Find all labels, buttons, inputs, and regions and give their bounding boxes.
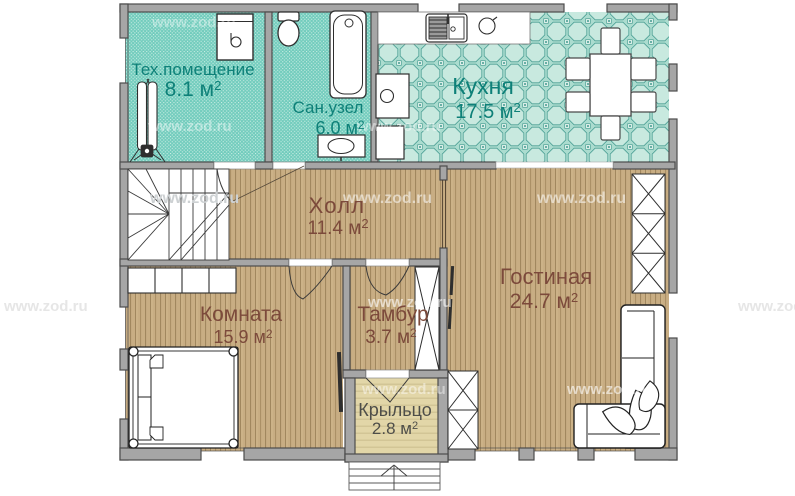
svg-text:www.zod.ru: www.zod.ru — [566, 381, 651, 398]
svg-text:Комната: Комната — [200, 303, 283, 326]
svg-text:www.zod.ru: www.zod.ru — [361, 381, 446, 398]
svg-text:2.8 м2: 2.8 м2 — [372, 419, 418, 438]
svg-text:24.7 м2: 24.7 м2 — [510, 290, 578, 313]
svg-text:Тамбур: Тамбур — [357, 303, 428, 326]
svg-text:www.zod.ru: www.zod.ru — [3, 298, 88, 315]
svg-text:www.zod.ru: www.zod.ru — [147, 118, 232, 135]
svg-text:Сан.узел: Сан.узел — [293, 98, 364, 117]
svg-text:www.zod.ru: www.zod.ru — [356, 118, 441, 135]
svg-text:Тех.помещение: Тех.помещение — [131, 60, 254, 79]
svg-text:Кухня: Кухня — [452, 73, 514, 99]
svg-text:Гостиная: Гостиная — [500, 264, 592, 289]
svg-text:Крыльцо: Крыльцо — [358, 400, 431, 420]
svg-text:11.4 м2: 11.4 м2 — [307, 216, 368, 239]
svg-text:6.0 м2: 6.0 м2 — [315, 118, 364, 138]
svg-text:www.zod.ru: www.zod.ru — [151, 14, 236, 31]
svg-text:15.9 м2: 15.9 м2 — [213, 327, 272, 347]
svg-text:8.1 м2: 8.1 м2 — [165, 78, 222, 101]
svg-text:www.zod.ru: www.zod.ru — [737, 298, 795, 315]
svg-text:www.zod.ru: www.zod.ru — [149, 190, 239, 207]
svg-text:3.7 м2: 3.7 м2 — [365, 326, 417, 348]
svg-text:www.zod.ru: www.zod.ru — [536, 190, 626, 207]
svg-text:17.5 м2: 17.5 м2 — [455, 100, 520, 123]
svg-text:Холл: Холл — [309, 193, 366, 218]
